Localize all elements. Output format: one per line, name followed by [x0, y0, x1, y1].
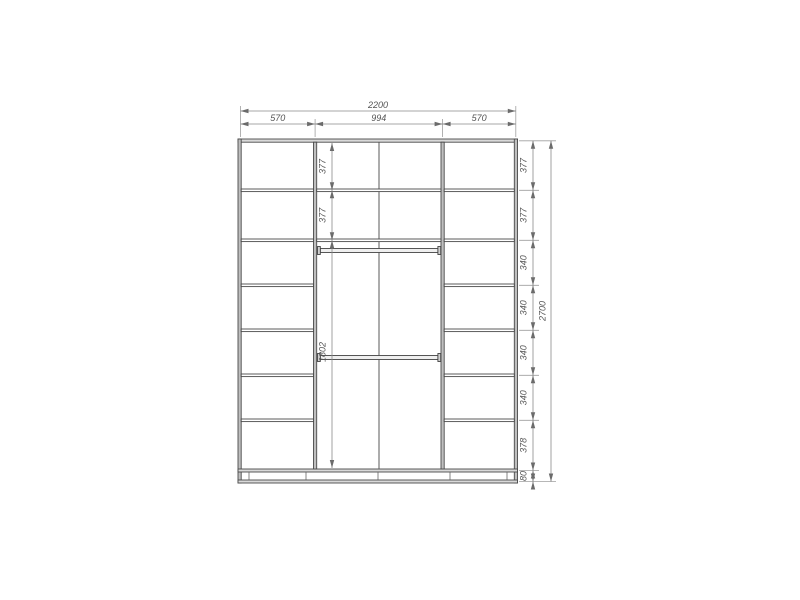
rod-bar — [320, 249, 438, 253]
shelf-line — [241, 239, 313, 242]
rod-end-bracket — [438, 247, 441, 255]
rod-end-bracket — [438, 354, 441, 362]
plinth-feet — [249, 473, 507, 480]
wardrobe-technical-drawing: 2200 570 994 570 377 377 340 — [0, 0, 800, 600]
overall-height-label: 2700 — [538, 301, 548, 322]
right-chain-label-3: 340 — [519, 255, 529, 270]
shelf-line — [444, 239, 514, 242]
shelf-line — [444, 189, 514, 192]
right-chain-label-4: 340 — [519, 300, 529, 315]
shelf-line — [444, 419, 514, 422]
left-side-panel — [238, 139, 241, 483]
right-chain-label-5: 340 — [519, 345, 529, 360]
middle-chain-label-3: 1802 — [318, 342, 328, 362]
partition-right — [441, 142, 444, 469]
right-chain-label-7: 378 — [519, 438, 529, 453]
shelf-line — [317, 239, 441, 242]
shelf-line — [444, 284, 514, 287]
shelf-line — [241, 374, 313, 377]
top-panel — [238, 139, 518, 142]
right-section-width-label: 570 — [472, 113, 487, 123]
left-section-width-label: 570 — [270, 113, 285, 123]
right-side-panel — [514, 139, 517, 483]
shelf-line — [241, 284, 313, 287]
shelf-line — [241, 329, 313, 332]
top-dimensions: 2200 570 994 570 — [241, 100, 516, 137]
middle-chain-label-1: 377 — [318, 158, 328, 174]
shelf-line — [241, 189, 313, 192]
overall-width-label: 2200 — [367, 100, 388, 110]
right-chain-label-1: 377 — [519, 157, 529, 173]
middle-section-width-label: 994 — [371, 113, 386, 123]
drawing-canvas: 2200 570 994 570 377 377 340 — [0, 0, 800, 600]
rod-bar — [320, 356, 438, 360]
shelf-line — [241, 419, 313, 422]
shelf-line — [444, 329, 514, 332]
cabinet-carcass — [238, 139, 518, 483]
left-column-shelves — [241, 189, 313, 422]
partition-left — [314, 142, 317, 469]
shelf-line — [317, 189, 441, 192]
overall-height-dimension: 2700 — [538, 141, 554, 482]
shelf-line — [444, 374, 514, 377]
rod-end-bracket — [318, 247, 321, 255]
right-chain-label-6: 340 — [519, 390, 529, 405]
middle-chain-label-2: 377 — [318, 207, 328, 223]
right-column-shelves — [444, 189, 514, 422]
plinth-bottom-edge — [238, 480, 518, 483]
bottom-panel — [238, 469, 518, 472]
right-chain-label-8: 80 — [519, 471, 529, 481]
right-chain-label-2: 377 — [519, 207, 529, 223]
